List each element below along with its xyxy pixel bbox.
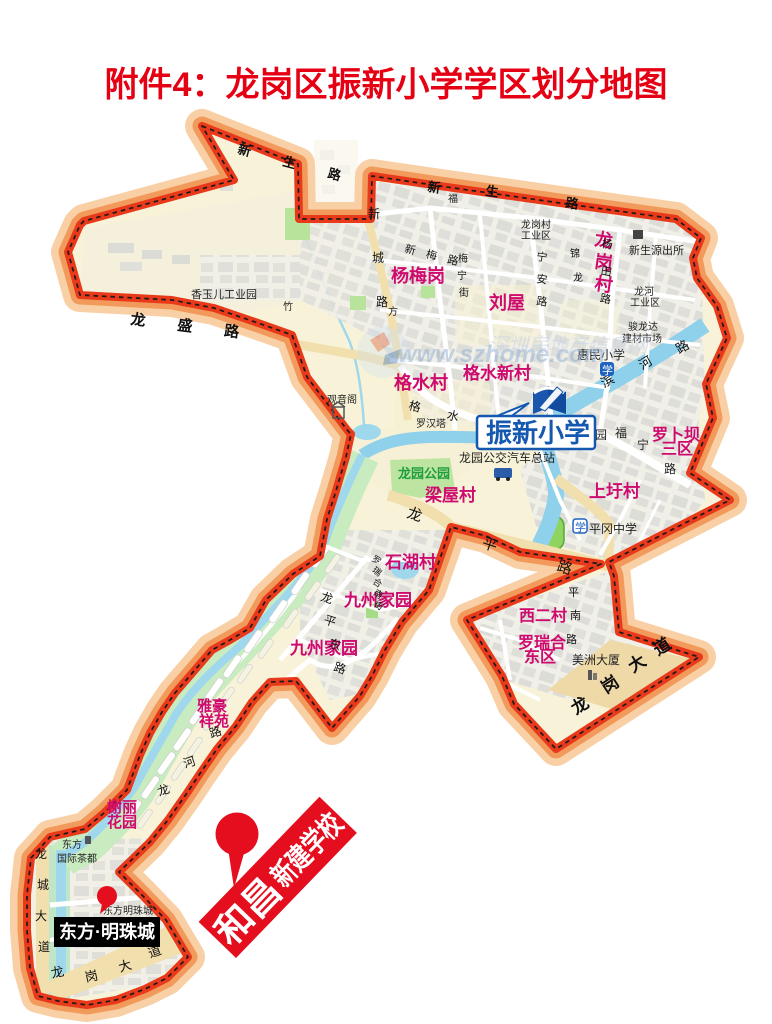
svg-text:龙河: 龙河 xyxy=(634,285,654,298)
svg-text:新: 新 xyxy=(427,179,442,196)
svg-text:梁屋村: 梁屋村 xyxy=(424,485,476,505)
svg-text:西二村: 西二村 xyxy=(519,606,567,625)
svg-text:三区: 三区 xyxy=(661,440,693,458)
svg-text:龙园公园: 龙园公园 xyxy=(398,466,450,481)
svg-text:路: 路 xyxy=(664,461,676,476)
svg-text:工业区: 工业区 xyxy=(521,230,551,242)
svg-text:龙岗村: 龙岗村 xyxy=(521,218,551,231)
svg-text:龙园公交汽车总站: 龙园公交汽车总站 xyxy=(459,450,555,465)
svg-text:石湖村: 石湖村 xyxy=(384,552,436,572)
svg-text:东区: 东区 xyxy=(524,647,556,666)
svg-text:福: 福 xyxy=(448,192,458,205)
svg-text:九州家园: 九州家园 xyxy=(289,638,358,658)
svg-text:平冈中学: 平冈中学 xyxy=(589,521,637,536)
svg-text:格水村: 格水村 xyxy=(394,372,448,393)
svg-text:福: 福 xyxy=(615,425,627,440)
svg-text:上圩村: 上圩村 xyxy=(589,481,640,501)
svg-text:工业区: 工业区 xyxy=(630,297,660,309)
svg-text:园: 园 xyxy=(595,428,607,442)
svg-text:新生源出所: 新生源出所 xyxy=(629,243,684,257)
svg-text:学: 学 xyxy=(602,363,613,377)
svg-text:杨梅岗: 杨梅岗 xyxy=(391,265,445,286)
svg-text:深圳房地产信息网: 深圳房地产信息网 xyxy=(488,335,651,357)
svg-text:宁: 宁 xyxy=(637,437,649,452)
svg-text:学: 学 xyxy=(575,520,586,534)
svg-text:振新小学: 振新小学 xyxy=(486,418,590,448)
svg-text:花园: 花园 xyxy=(107,813,137,831)
svg-text:竹: 竹 xyxy=(283,300,293,313)
svg-text:国际茶都: 国际茶都 xyxy=(57,852,97,865)
svg-text:生: 生 xyxy=(485,183,500,200)
svg-text:香玉儿工业园: 香玉儿工业园 xyxy=(191,288,257,301)
svg-text:骏龙达: 骏龙达 xyxy=(628,320,658,333)
svg-text:刘屋: 刘屋 xyxy=(489,292,525,313)
svg-text:东方: 东方 xyxy=(62,838,82,851)
svg-text:方: 方 xyxy=(388,305,398,318)
svg-text:美洲大厦: 美洲大厦 xyxy=(572,653,620,667)
